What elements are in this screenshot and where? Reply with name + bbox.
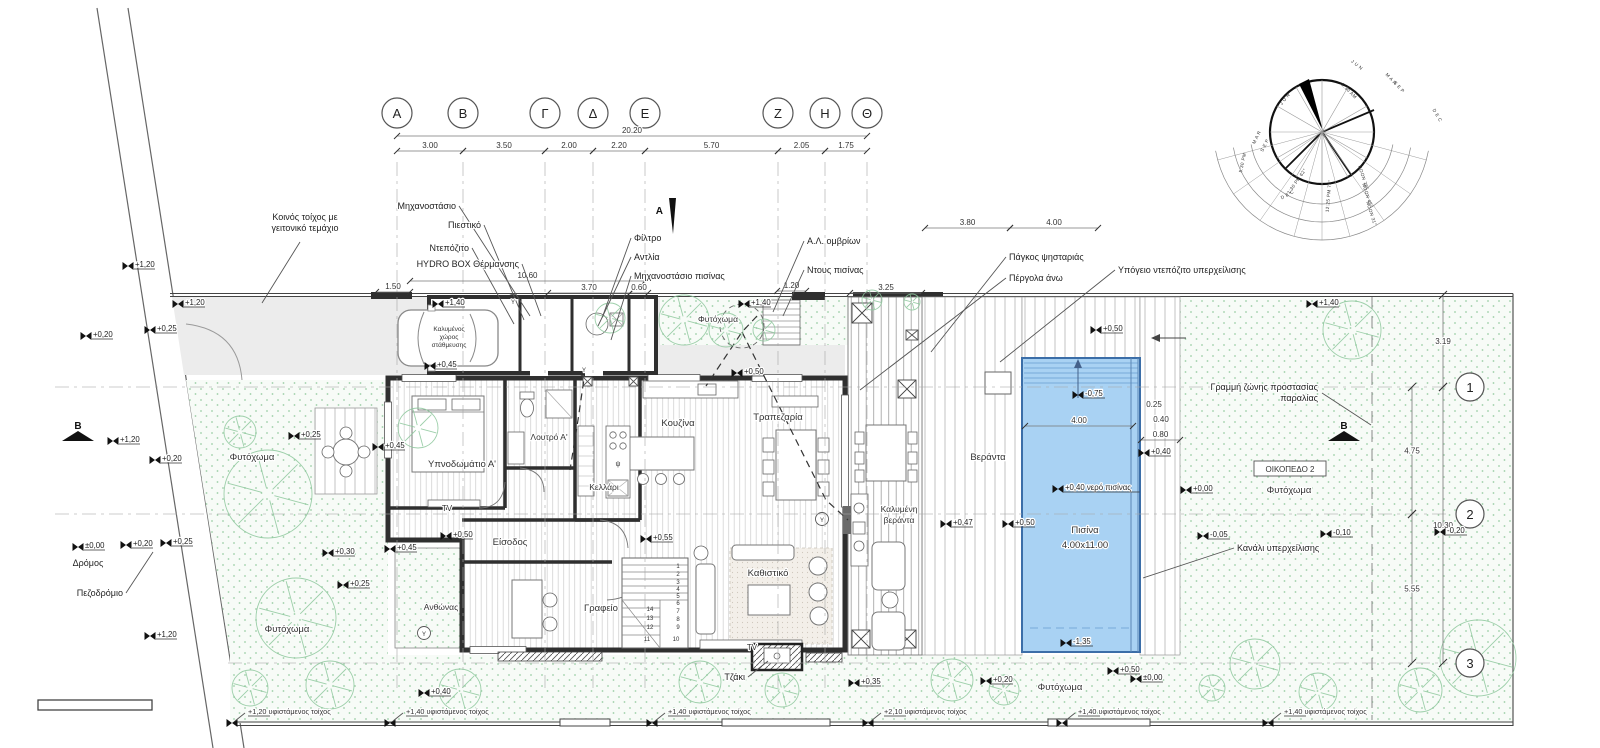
room-label: Υπνοδωμάτιο Α' [428, 459, 496, 470]
dimension-value: 0.80 [1153, 430, 1169, 439]
spot-elevation-value: +0,25 [173, 537, 193, 546]
stair-number: 13 [647, 616, 654, 622]
stair-number: 12 [647, 625, 654, 631]
spot-elevation-marker [108, 437, 119, 445]
annotation-label: Κανάλι υπερχείλισης [1237, 543, 1320, 553]
dimension-value: 3.19 [1435, 337, 1451, 346]
grid-column-label: Ζ [774, 106, 782, 121]
tv-bench [428, 500, 480, 507]
spot-elevation-value: +1,20 [120, 435, 140, 444]
room-label: βεράντα [884, 515, 915, 525]
bbq-grill [853, 522, 865, 534]
annotation-label: Μηχανοστάσιο πισίνας [634, 271, 725, 281]
room-label: Τραπεζαρία [753, 412, 803, 423]
section-a-arrow [669, 198, 676, 234]
room-label: Γραφείο [584, 603, 618, 614]
section-b-arrow-left [62, 431, 94, 441]
spot-elevation-value: +0,20 [93, 330, 113, 339]
dimension-value: 0.25 [1146, 400, 1162, 409]
spot-elevation-value: -0,20 [1447, 526, 1465, 535]
grid-row-label: 2 [1466, 507, 1473, 522]
spot-elevation-value: +0,25 [350, 579, 370, 588]
annotation-label: Ντεπόζιτο [429, 243, 469, 253]
pool-water [1022, 358, 1140, 652]
sun-ray [1260, 132, 1322, 220]
sun-diagram-label: J U N [1279, 92, 1291, 106]
coffee-table [748, 585, 790, 615]
dimension-value: 3.70 [581, 283, 597, 292]
grid-column-label: Β [459, 106, 468, 121]
leader-line [126, 552, 153, 593]
existing-wall-note: +1,20 υφιστάμενος τοίχος [248, 707, 331, 716]
spot-elevation-value: +0,50 [1015, 518, 1035, 527]
annotation-label: Α.Λ. ομβρίων [807, 236, 861, 246]
room-label: Φυτόχωμα [1267, 485, 1312, 496]
armchair [809, 557, 827, 575]
grid-column-label: Γ [541, 106, 548, 121]
cooktop-burner [610, 432, 616, 438]
armchair [809, 583, 827, 601]
sun-diagram-label: NOON 31° [1365, 201, 1378, 227]
sun-path-diagram [1216, 79, 1429, 240]
existing-wall-note: +1,40 υφιστάμενος τοίχος [1284, 707, 1367, 716]
room-label: χώρος [440, 333, 459, 341]
spot-elevation-value: -0,05 [1210, 530, 1228, 539]
spot-elevation-value: ±0,00 [1143, 673, 1163, 682]
annotation-label: B [1340, 421, 1347, 432]
stair-number: 10 [673, 637, 680, 643]
annotation-label: Μηχανοστάσιο [398, 201, 456, 211]
stair-number: 11 [644, 637, 651, 643]
spot-elevation-value: +0,50 [744, 367, 764, 376]
room-label: Πισίνα [1071, 525, 1099, 536]
sun-diagram-label: M A R [1251, 130, 1262, 145]
annotation-label: Πιεστικό [448, 220, 481, 230]
spot-elevation-value: +1,20 [135, 260, 155, 269]
spot-elevation-value: +0,47 [953, 518, 973, 527]
grid-row-label: 1 [1466, 380, 1473, 395]
room-label: Βεράντα [970, 452, 1006, 463]
room-label: Είσοδος [493, 537, 528, 548]
spot-elevation-value: +0,45 [397, 543, 417, 552]
north-needle [1299, 79, 1323, 131]
spot-elevation-value: -1,35 [1073, 637, 1091, 646]
annotation-label: HYDRO BOX Θέρμανσης [417, 259, 520, 269]
spot-elevation-value: +0,20 [162, 454, 182, 463]
dimension-value: 3.00 [422, 141, 438, 150]
room-label: TV [442, 504, 453, 513]
grid-column-label: Θ [862, 106, 872, 121]
spot-elevation-value: +0,25 [157, 324, 177, 333]
toilet [521, 399, 534, 417]
spot-elevation-value: +0,50 [453, 530, 473, 539]
spot-elevation-marker [81, 332, 92, 340]
dimension-value: 20.20 [622, 126, 643, 135]
annotation-label: Τζάκι [724, 672, 745, 682]
room-label: Λουτρό Α' [530, 432, 568, 442]
spot-elevation-value: +0,40 [431, 687, 451, 696]
room-label: Υ [820, 518, 824, 524]
spot-elevation-marker [123, 262, 134, 270]
spot-elevation-value: +1,40 [1319, 298, 1339, 307]
annotation-label: Δρόμος [73, 558, 104, 568]
spot-elevation-value: +0,45 [385, 441, 405, 450]
bbq-sink [854, 503, 864, 513]
site-plan-drawing: ΑΒΓΔΕΖΗΘ12320.203.003.502.002.205.702.05… [0, 0, 1600, 748]
spot-elevation-value: +0,35 [861, 677, 881, 686]
room-label: Φυτόχωμα [230, 452, 275, 463]
spot-elevation-value: +1,40 [751, 298, 771, 307]
spot-elevation-marker [121, 541, 132, 549]
spot-elevation-value: +1,40 [445, 298, 465, 307]
spot-elevation-value: +0,55 [653, 533, 673, 542]
spot-elevation-marker [161, 539, 172, 547]
sofa-side [696, 564, 715, 634]
annotation-label: B [74, 421, 81, 432]
spot-elevation-value: ±0,00 [85, 541, 105, 550]
spot-elevation-value: +0,50 [1103, 324, 1123, 333]
lounger [872, 612, 905, 650]
kitchen-counter [643, 381, 738, 398]
sun-diagram-label: D E C [1432, 108, 1444, 123]
spot-elevation-marker [73, 543, 84, 551]
room-label: Φυτόχωμα [698, 314, 738, 324]
stair-number: 14 [647, 607, 654, 613]
lounger [872, 542, 905, 590]
spot-elevation-marker [385, 545, 396, 553]
annotation-label: A [656, 206, 663, 217]
sun-diagram-label: J U N [1350, 59, 1364, 71]
spot-elevation-value: -0,10 [1333, 528, 1351, 537]
outdoor-table-round [333, 439, 359, 465]
room-label: Φυτόχωμα [1038, 682, 1083, 693]
room-label: Καλυμένη [881, 504, 918, 514]
underground-tank [985, 372, 1011, 394]
dimension-value: 3.80 [960, 218, 976, 227]
grid-column-label: Ε [641, 106, 650, 121]
existing-wall-note: +1,40 υφιστάμενος τοίχος [1078, 707, 1161, 716]
sun-diagram-label: S E P [1259, 138, 1270, 153]
spot-elevation-value: +1,20 [185, 298, 205, 307]
spot-elevation-value: +0,25 [301, 430, 321, 439]
room-label: Κουζίνα [661, 418, 695, 429]
spot-elevation-value: +0,20 [993, 675, 1013, 684]
room-label: ΟΙΚΟΠΕΔΟ 2 [1266, 465, 1315, 474]
dimension-value: 0.40 [1153, 415, 1169, 424]
spot-elevation-value: +1,20 [157, 630, 177, 639]
annotation-label: Φίλτρο [634, 233, 661, 243]
dimension-value: 3.25 [878, 283, 894, 292]
spot-elevation-marker [145, 326, 156, 334]
sun-diagram-label: 5:30 PM [1238, 152, 1247, 173]
room-label: Καθιστικό [748, 568, 789, 579]
fireplace [752, 644, 802, 670]
grid-column-label: Α [393, 106, 402, 121]
plant [694, 546, 708, 560]
dimension-value: 5.55 [1404, 585, 1420, 594]
dimension-value: 2.20 [611, 141, 627, 150]
room-label: ψ [616, 461, 621, 468]
annotation-label: Κοινός τοίχος μεγειτονικό τεμάχιο [271, 212, 338, 233]
existing-wall-note: +1,40 υφιστάμενος τοίχος [406, 707, 489, 716]
grid-column-label: Η [820, 106, 829, 121]
kitchen-island [628, 437, 694, 470]
room-label: Καλυμένος [433, 325, 464, 333]
road-and-sidewalk [38, 8, 244, 748]
existing-wall-note: +1,40 υφιστάμενος τοίχος [668, 707, 751, 716]
room-label: στάθμευσης [432, 341, 467, 349]
room-label: Φυτόχωμα [265, 624, 310, 635]
room-label: Κελλάρι [589, 482, 619, 492]
dimension-value: 5.70 [704, 141, 720, 150]
kitchen-sink [698, 384, 716, 395]
dimension-value: 0.60 [631, 283, 647, 292]
spot-elevation-value: +0,20 [133, 539, 153, 548]
outdoor-dining-table [866, 425, 906, 481]
room-label: Υ [511, 300, 515, 306]
sun-ray [1322, 132, 1384, 220]
dimension-value: 1.50 [385, 282, 401, 291]
west-deck [315, 408, 377, 494]
spot-elevation-value: +0,50 [1120, 665, 1140, 674]
spot-elevation-value: +0,30 [335, 547, 355, 556]
dimension-value: 1.75 [838, 141, 854, 150]
dimension-value: 4.75 [1404, 447, 1420, 456]
spot-elevation-value: +0,40 [1151, 447, 1171, 456]
room-label: 4.00x11.00 [1062, 540, 1108, 551]
grid-row-label: 3 [1466, 656, 1473, 671]
vanity [508, 432, 524, 464]
spot-elevation-marker [150, 456, 161, 464]
annotation-label: Υπόγειο ντεπόζιτο υπερχείλισης [1118, 265, 1246, 275]
dimension-value: 2.05 [794, 141, 810, 150]
spot-elevation-value: -0,75 [1085, 389, 1103, 398]
dimension-value: 2.00 [561, 141, 577, 150]
dimension-value: 4.00 [1071, 416, 1087, 425]
pillow [452, 399, 480, 410]
room-label: TV [747, 643, 758, 652]
sun-diagram-label: S E P [1393, 80, 1406, 94]
annotation-label: Πεζοδρόμιο [77, 588, 123, 598]
dimension-value: 3.50 [496, 141, 512, 150]
sofa [732, 545, 794, 560]
room-label: Ανθώνας [424, 602, 458, 612]
sideboard [772, 396, 818, 407]
dimension-value: 4.00 [1046, 218, 1062, 227]
sun-ray [1234, 132, 1322, 194]
existing-wall-note: +2,10 υφιστάμενος τοίχος [884, 707, 967, 716]
spot-elevation-value: +0,40 νερό πισίνας [1065, 483, 1131, 492]
spot-elevation-marker [145, 632, 156, 640]
room-label: Υ [422, 632, 426, 638]
room-label: Υ [582, 368, 586, 374]
annotation-label: Αντλία [634, 252, 660, 262]
annotation-label: Πάγκος ψησταριάς [1009, 252, 1084, 262]
annotation-label: Πέργολα άνω [1009, 273, 1063, 283]
desk [512, 580, 542, 638]
grid-column-label: Δ [589, 106, 598, 121]
annotation-label: Ντους πισίνας [807, 265, 864, 275]
spot-elevation-value: +0,00 [1193, 484, 1213, 493]
side-table [882, 592, 898, 608]
spot-elevation-value: +0,45 [437, 360, 457, 369]
door-gap [585, 368, 603, 376]
